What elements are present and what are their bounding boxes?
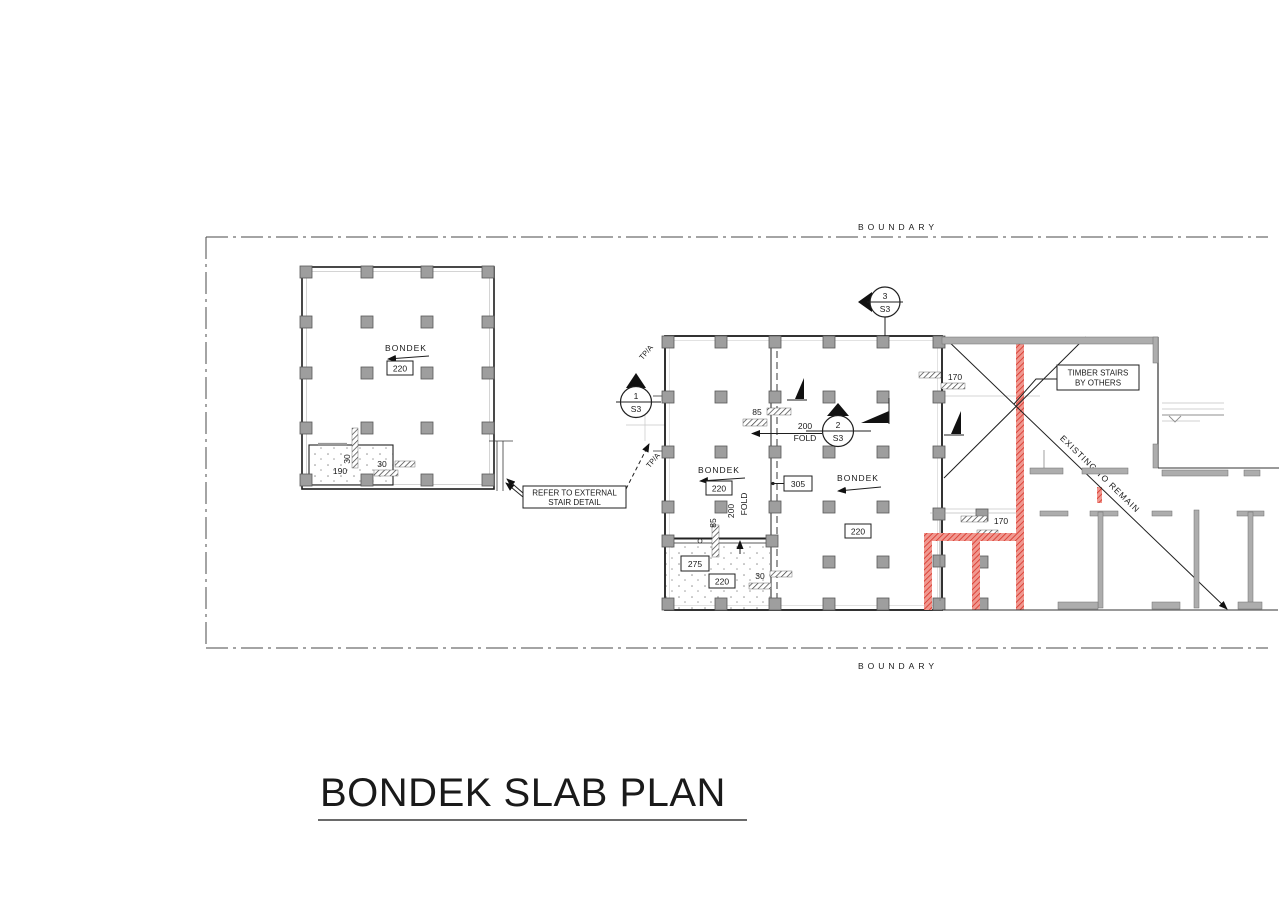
hatch-wall-a (352, 428, 358, 468)
red-wall-middle (972, 541, 980, 610)
left-building: BONDEK 220 30 30 190 (300, 266, 494, 489)
timber-stairs-callout: TIMBER STAIRS BY OTHERS (1014, 365, 1139, 404)
hatch-wall-left (712, 525, 719, 557)
slab-value-bottom: 220 (715, 577, 729, 587)
section-1-sheet: S3 (631, 404, 642, 414)
red-wall-stub (1097, 487, 1102, 503)
bondek-slab-plan-sheet: BOUNDARY BOUNDARY BONDEK 220 30 30 190 (0, 0, 1280, 904)
existing-top-wall (942, 337, 1158, 344)
dim-190: 190 (333, 466, 347, 476)
gridline-label-tpa-bottom: TP/A (644, 451, 662, 470)
timber-callout-line2: BY OTHERS (1075, 379, 1121, 388)
section-2-number: 2 (836, 420, 841, 430)
red-wall-horizontal (924, 533, 1024, 541)
hatch-wall-c (395, 461, 415, 467)
dim-170-top: 170 (948, 372, 962, 382)
boundary-label-bottom: BOUNDARY (858, 661, 938, 671)
red-wall-vertical-long (1016, 343, 1024, 610)
red-wall-left (924, 541, 932, 610)
existing-partition-3 (1248, 512, 1253, 604)
slab-value-main-right: 220 (851, 527, 865, 537)
fold-h-word: FOLD (794, 433, 817, 443)
wall-point-marker (698, 539, 702, 543)
slab-thickness-value: 220 (393, 364, 407, 374)
fold-h-value: 200 (798, 421, 812, 431)
section-1-number: 1 (634, 391, 639, 401)
gridline-label-tpa-top: TP/A (637, 343, 655, 362)
section-marker-3: 3 S3 (858, 287, 903, 336)
section-3-sheet: S3 (880, 304, 891, 314)
dim-275-value: 275 (688, 559, 702, 569)
drawing-title-block: BONDEK SLAB PLAN (318, 771, 747, 820)
bondek-label-left-building: BONDEK (385, 343, 427, 353)
existing-partition-2 (1194, 510, 1199, 608)
callout-line2: STAIR DETAIL (548, 498, 601, 507)
dim-85-top: 85 (752, 407, 762, 417)
dim-30-main: 30 (755, 571, 765, 581)
dim-30-rotated: 30 (342, 454, 352, 464)
dim-30: 30 (377, 459, 387, 469)
timber-callout-line1: TIMBER STAIRS (1068, 369, 1129, 378)
slab-value-main-left: 220 (712, 484, 726, 494)
callout-line1: REFER TO EXTERNAL (532, 489, 617, 498)
boundary-label-top: BOUNDARY (858, 222, 938, 232)
dim-305-value: 305 (791, 479, 805, 489)
dim-170-mid: 170 (994, 516, 1008, 526)
main-building: BONDEK 220 200 FOLD 85 305 85 200 FOLD 1… (662, 336, 1040, 610)
external-stair-callout: REFER TO EXTERNAL STAIR DETAIL (506, 444, 649, 508)
callout-leader-right (626, 444, 649, 489)
existing-stair-treads (1162, 403, 1224, 422)
dim-85-left: 85 (708, 518, 718, 528)
bondek-label-main-left: BONDEK (698, 465, 740, 475)
fold-v-word: FOLD (739, 493, 749, 516)
plan-drawing: BOUNDARY BOUNDARY BONDEK 220 30 30 190 (0, 0, 1280, 904)
bondek-label-main-right: BONDEK (837, 473, 879, 483)
existing-partition-1 (1098, 512, 1103, 608)
page-title: BONDEK SLAB PLAN (320, 771, 726, 815)
section-marker-1: 1 S3 (616, 373, 661, 418)
hatch-wall-b (374, 470, 398, 476)
section-3-number: 3 (883, 291, 888, 301)
section-2-sheet: S3 (833, 433, 844, 443)
fold-v-value: 200 (726, 504, 736, 518)
